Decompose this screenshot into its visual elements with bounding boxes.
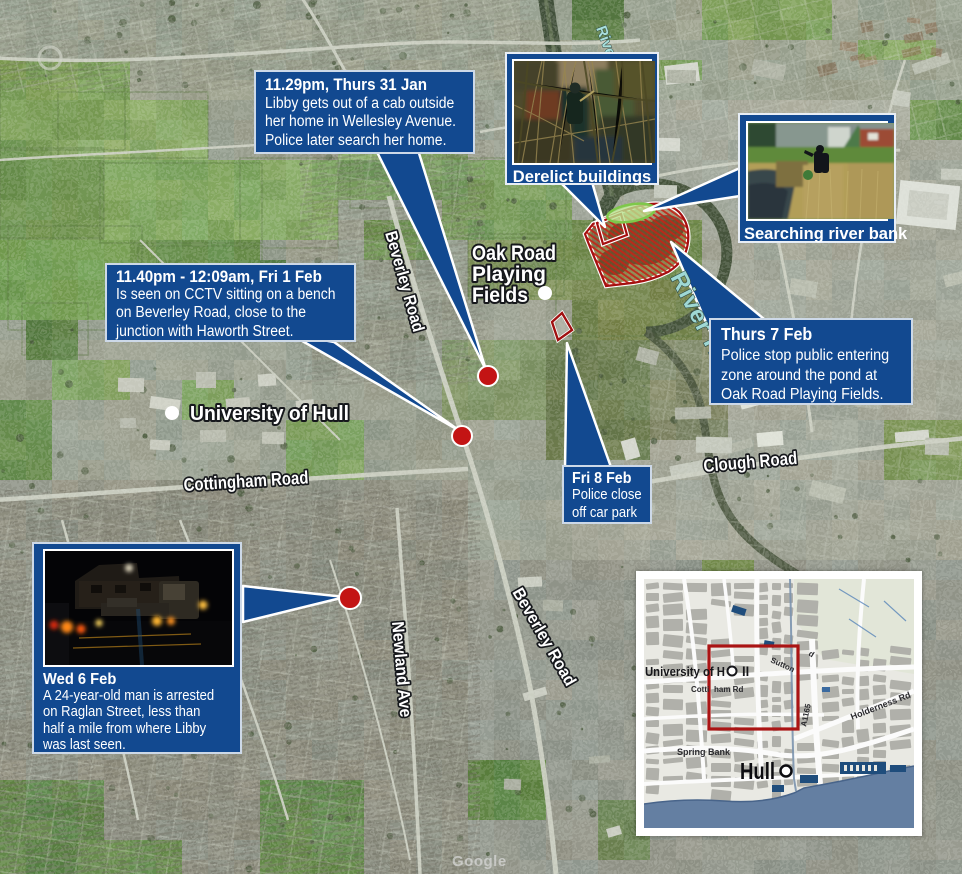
svg-text:ll: ll [742,664,749,679]
svg-text:Cotti: Cotti [691,685,709,694]
svg-text:Google: Google [452,853,507,870]
svg-text:Oak Road: Oak Road [472,242,556,265]
svg-text:Spring Bank: Spring Bank [677,747,731,757]
svg-text:University of H: University of H [645,665,725,679]
svg-text:University of Hull: University of Hull [190,403,349,425]
svg-text:Hull: Hull [740,758,775,784]
svg-text:ham Rd: ham Rd [714,685,743,694]
svg-text:Playing: Playing [472,263,546,286]
svg-text:Fields: Fields [472,284,528,307]
